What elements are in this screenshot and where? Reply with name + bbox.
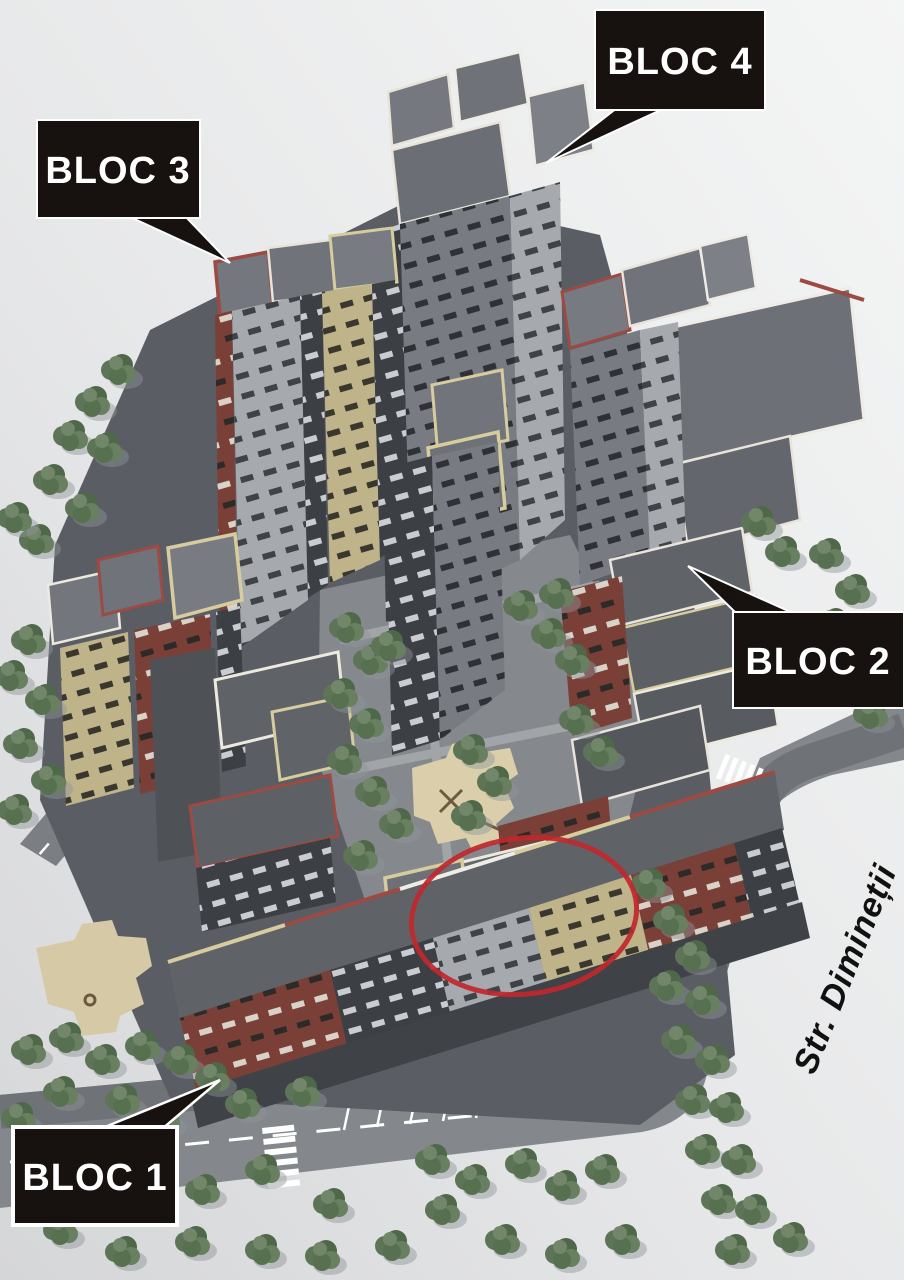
callout-bloc3-text: BLOC 3 <box>45 150 190 192</box>
callout-bloc2-text: BLOC 2 <box>745 641 890 683</box>
site-plan-render: BLOC 4 BLOC 3 BLOC 2 BLOC 1 Str. Dimineț… <box>0 0 904 1280</box>
callout-bloc1-text: BLOC 1 <box>22 1157 167 1199</box>
aerial-render-canvas: BLOC 4 BLOC 3 BLOC 2 BLOC 1 Str. Dimineț… <box>0 0 904 1280</box>
callout-bloc4-text: BLOC 4 <box>607 41 752 83</box>
